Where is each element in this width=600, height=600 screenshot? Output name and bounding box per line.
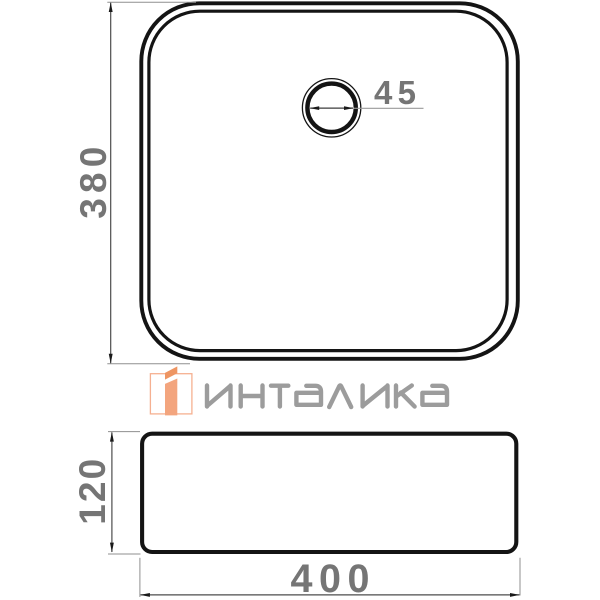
svg-text:400: 400 <box>291 557 370 600</box>
svg-text:45: 45 <box>374 74 416 111</box>
svg-text:120: 120 <box>72 459 113 525</box>
svg-text:380: 380 <box>73 147 114 219</box>
